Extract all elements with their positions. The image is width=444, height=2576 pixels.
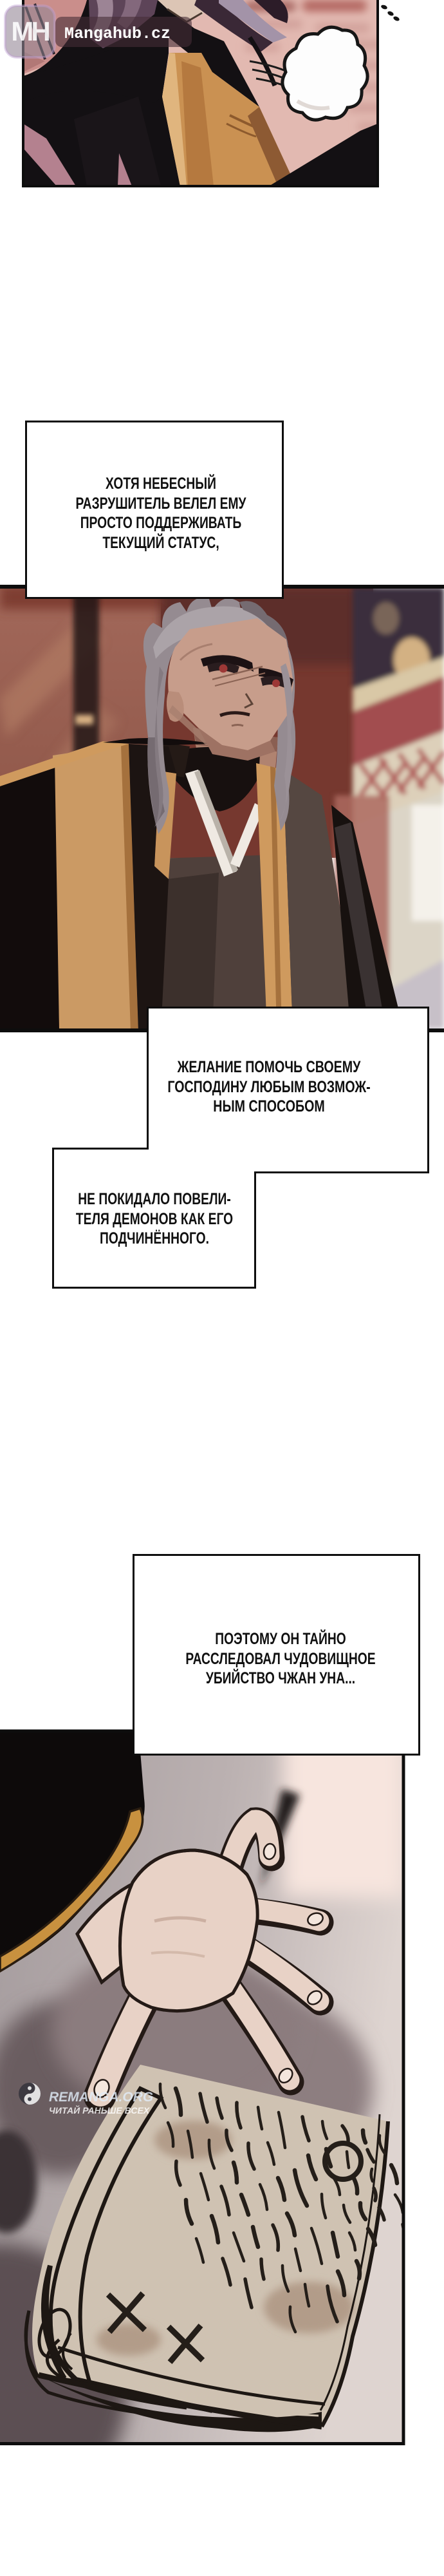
svg-text:REMANGA.ORG: REMANGA.ORG [49, 2090, 153, 2105]
svg-text:Mangahub.cz: Mangahub.cz [64, 24, 171, 43]
svg-text:ЧИТАЙ РАНЬШЕ ВСЕХ: ЧИТАЙ РАНЬШЕ ВСЕХ [49, 2105, 151, 2116]
svg-text:MH: MH [11, 16, 49, 46]
